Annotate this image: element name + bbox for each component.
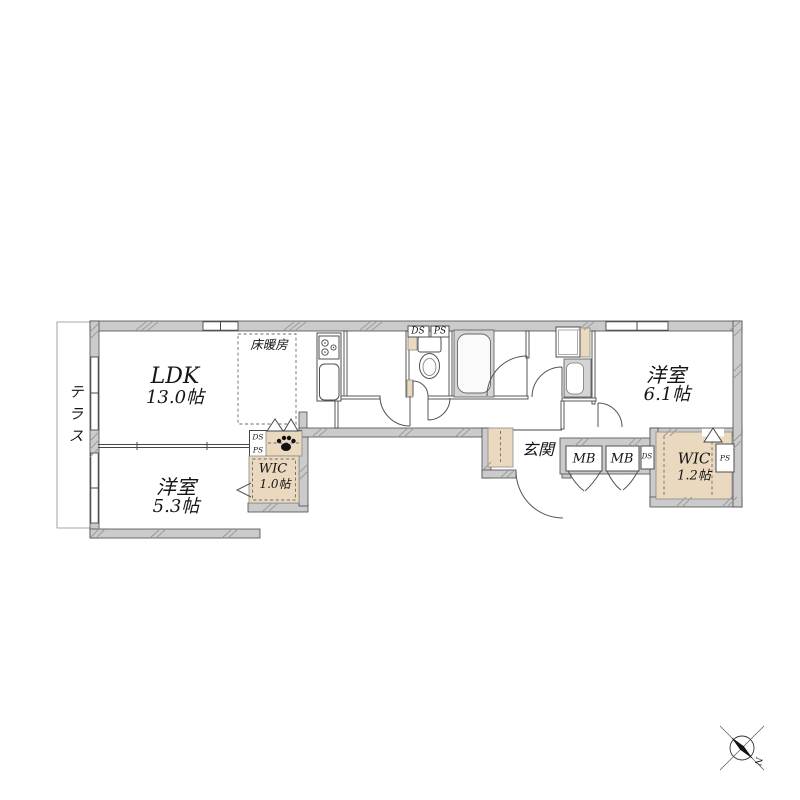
- toilet-cistern: [418, 337, 441, 352]
- wall-ldk-bedroom-a: [98, 442, 250, 450]
- toilet-ps-label: PS: [434, 328, 446, 337]
- wic-a-name: WIC: [259, 463, 287, 476]
- wic-b-size: 1.2帖: [677, 470, 711, 483]
- paw-toe: [291, 439, 295, 443]
- wall-kitchen-east: [344, 331, 347, 397]
- toilet-door: [428, 398, 450, 420]
- paw-toe: [287, 436, 291, 440]
- wic-b-ps-label: PS: [720, 454, 730, 462]
- wic-a-ds-label: DS: [252, 433, 263, 441]
- toilet-icon: [420, 354, 440, 379]
- floor-plan: テラス LDK 13.0帖 床暖房 洋室 5.3帖 洋室 6.1帖 WIC 1.…: [0, 0, 800, 800]
- wic-a-ps-label: PS: [253, 446, 263, 454]
- wic-a-size: 1.0帖: [259, 478, 290, 490]
- wall-corridor-north-3: [562, 398, 596, 401]
- meter-box-2-label: MB: [611, 453, 634, 466]
- toilet-ds-label: DS: [411, 328, 424, 337]
- burner-dot: [333, 347, 334, 348]
- kitchen-counter: [317, 333, 341, 401]
- toilet-side-cabinet: [408, 337, 417, 350]
- bifold-door-icon: [284, 419, 298, 431]
- wall-hall-east: [561, 401, 564, 429]
- bedroom-b-door: [598, 403, 622, 427]
- bifold-door-icon: [267, 419, 283, 431]
- wall-corridor-north-1: [336, 396, 380, 399]
- wall-washroom-east: [592, 331, 595, 404]
- wic-b-name: WIC: [678, 452, 711, 467]
- bathtub-icon: [458, 334, 491, 393]
- meter-ds-label: DS: [642, 454, 652, 461]
- wall-bath-east: [526, 331, 529, 358]
- wall-bottom-left: [90, 529, 260, 538]
- toilet-inner-door: [413, 381, 428, 396]
- wall-right: [733, 321, 742, 507]
- wall-toilet-east: [449, 331, 452, 397]
- laundry-cabinet: [580, 328, 590, 357]
- burner-dot: [324, 342, 326, 344]
- toilet-door-jamb: [407, 380, 413, 397]
- paw-toe: [277, 439, 281, 443]
- bedroom-a-size: 5.3帖: [153, 498, 200, 516]
- ldk-size: 13.0帖: [146, 389, 204, 407]
- kitchen-sink: [320, 364, 340, 400]
- paw-pad: [281, 443, 291, 451]
- paw-toe: [282, 436, 286, 440]
- bedroom-b-size: 6.1帖: [644, 386, 691, 404]
- ldk-door: [380, 396, 410, 426]
- entrance-label: 玄関: [522, 442, 554, 458]
- bedroom-a-name: 洋室: [156, 477, 196, 497]
- bedroom-b-name: 洋室: [646, 365, 686, 385]
- meter-box-1-label: MB: [573, 453, 596, 466]
- burner-dot: [324, 351, 326, 353]
- terrace-label: テラス: [68, 384, 83, 450]
- wash-basin: [567, 363, 584, 394]
- washer-pan: [556, 327, 580, 357]
- entry-door: [516, 471, 563, 518]
- washroom-door: [532, 367, 562, 397]
- ldk-name: LDK: [151, 366, 200, 388]
- floor-heating-label: 床暖房: [250, 339, 288, 352]
